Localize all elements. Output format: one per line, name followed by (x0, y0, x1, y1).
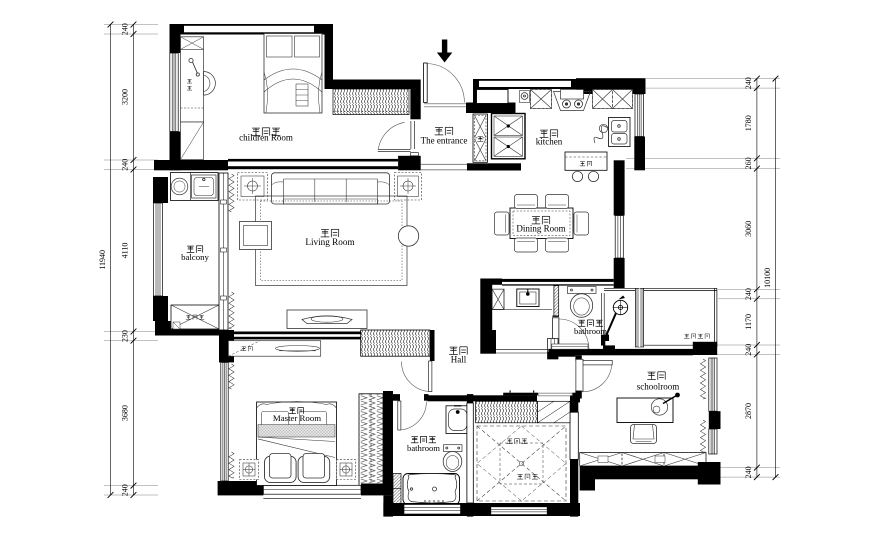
svg-text:10100: 10100 (763, 268, 772, 288)
svg-text:4110: 4110 (121, 243, 130, 259)
svg-text:3680: 3680 (121, 405, 130, 421)
svg-text:240: 240 (744, 288, 753, 300)
svg-text:240: 240 (121, 159, 130, 171)
svg-text:2870: 2870 (744, 403, 753, 419)
svg-text:schoolroom: schoolroom (637, 382, 680, 392)
svg-text:230: 230 (121, 330, 130, 342)
svg-text:260: 260 (744, 157, 753, 169)
svg-text:3060: 3060 (744, 221, 753, 237)
svg-text:11940: 11940 (98, 250, 107, 270)
svg-text:children Room: children Room (239, 133, 293, 143)
svg-text:balcony: balcony (181, 252, 209, 262)
svg-text:Master Room: Master Room (273, 413, 321, 423)
svg-text:240: 240 (121, 484, 130, 496)
svg-text:Living Room: Living Room (305, 237, 354, 247)
svg-text:240: 240 (744, 344, 753, 356)
svg-text:1780: 1780 (744, 115, 753, 131)
svg-text:bathroom: bathroom (407, 443, 440, 453)
svg-text:Dining Room: Dining Room (516, 224, 565, 234)
svg-text:240: 240 (121, 23, 130, 35)
svg-text:kitchen: kitchen (536, 137, 563, 147)
svg-text:240: 240 (744, 77, 753, 89)
svg-text:3200: 3200 (121, 89, 130, 105)
svg-text:The entrance: The entrance (421, 136, 468, 146)
svg-text:1170: 1170 (744, 314, 753, 330)
svg-text:Hall: Hall (451, 355, 467, 365)
svg-text:240: 240 (744, 466, 753, 478)
svg-text:bathroom: bathroom (574, 326, 607, 336)
